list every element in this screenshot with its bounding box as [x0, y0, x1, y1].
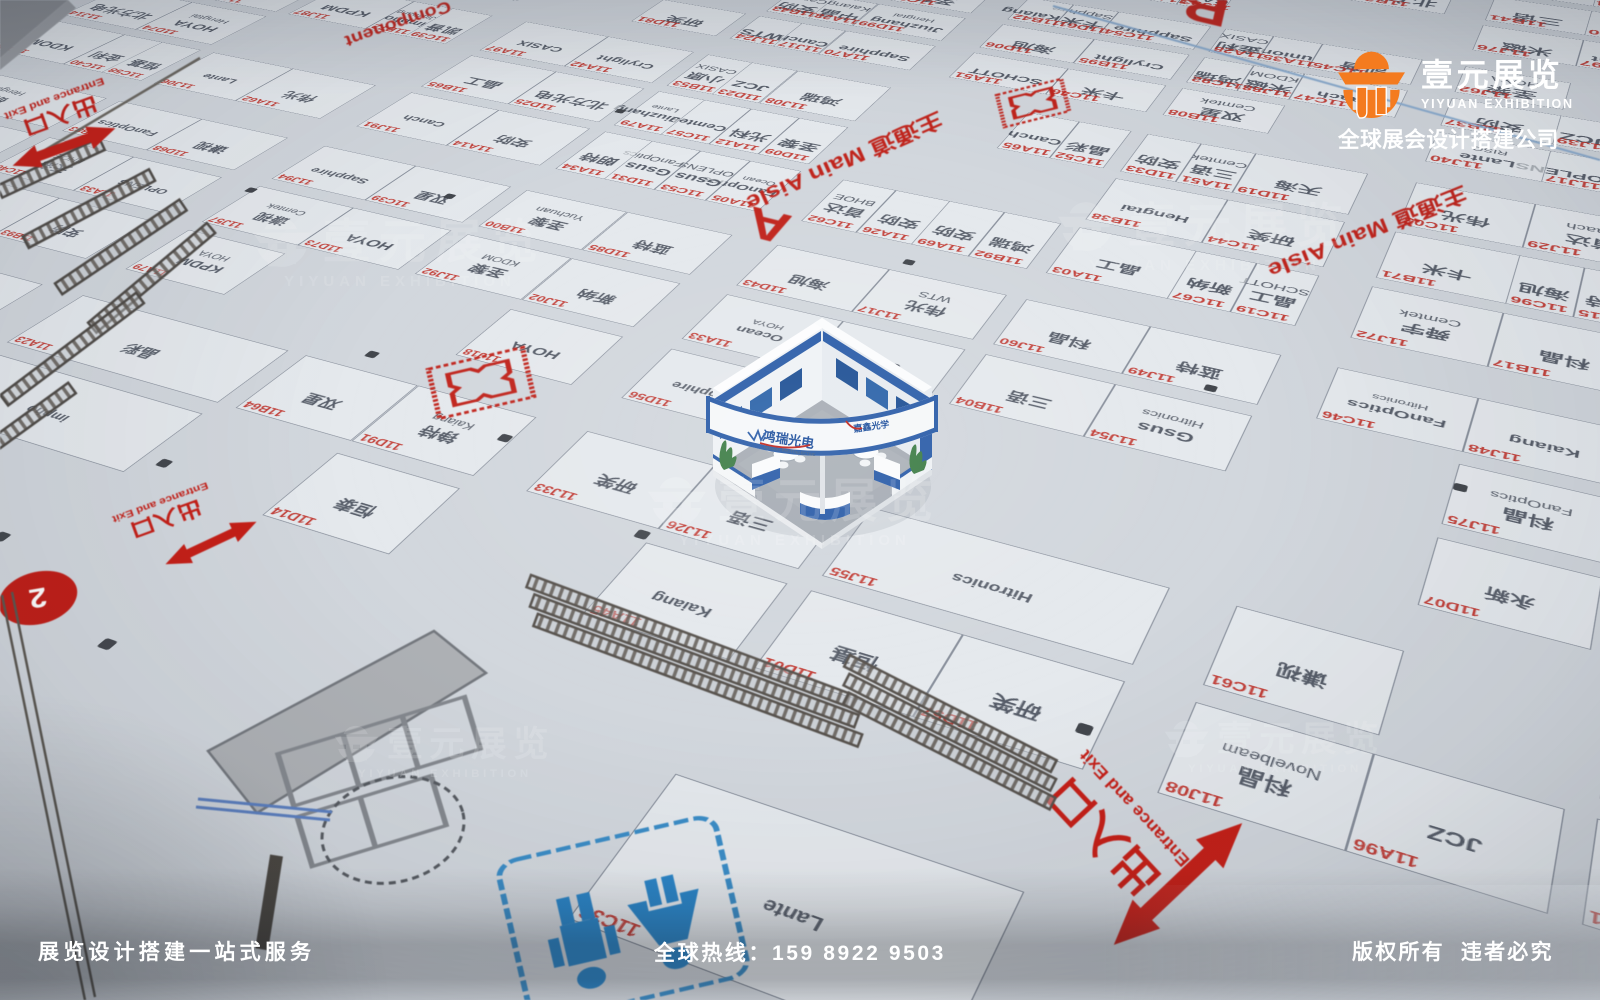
svg-text:主通道 Main Aisle: 主通道 Main Aisle	[743, 107, 947, 215]
